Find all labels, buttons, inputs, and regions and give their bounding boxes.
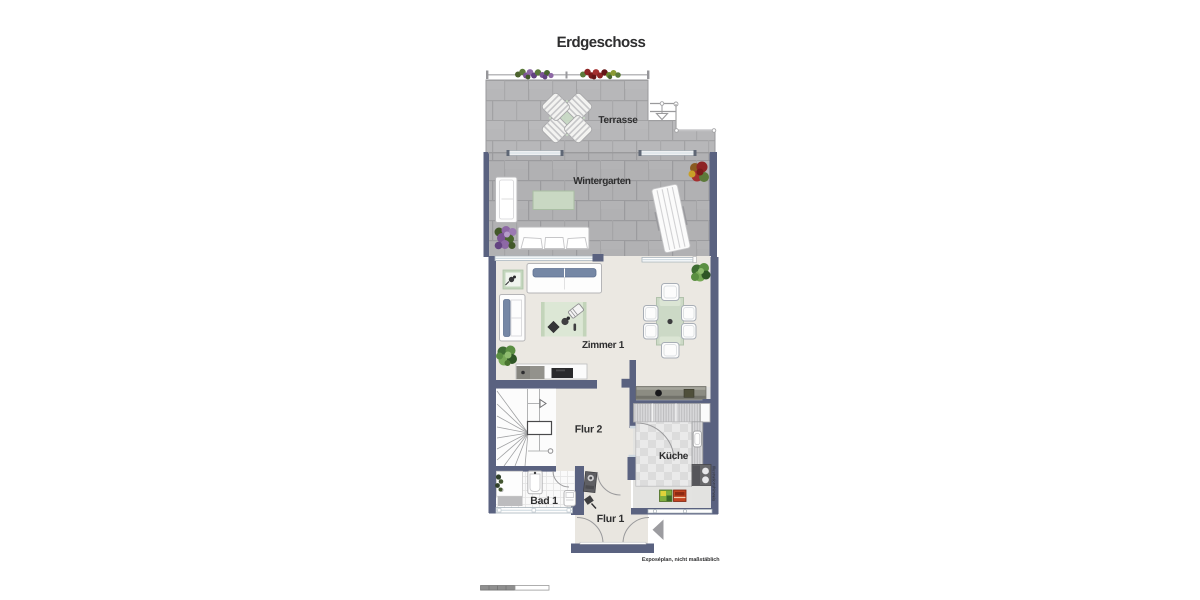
svg-text:Erdgeschoss: Erdgeschoss [557, 34, 646, 51]
svg-text:Bad 1: Bad 1 [530, 495, 558, 507]
svg-text:Flur 2: Flur 2 [575, 424, 603, 436]
svg-text:Zimmer 1: Zimmer 1 [582, 340, 625, 351]
svg-text:Wintergarten: Wintergarten [573, 176, 631, 187]
svg-text:Küche: Küche [659, 451, 689, 462]
svg-text:Exposéplan, nicht maßstäblich: Exposéplan, nicht maßstäblich [642, 557, 720, 563]
svg-text:Terrasse: Terrasse [598, 115, 638, 126]
svg-text:Illustrationshinweis: Illustrationshinweis [711, 466, 716, 501]
svg-text:Flur 1: Flur 1 [597, 513, 625, 525]
